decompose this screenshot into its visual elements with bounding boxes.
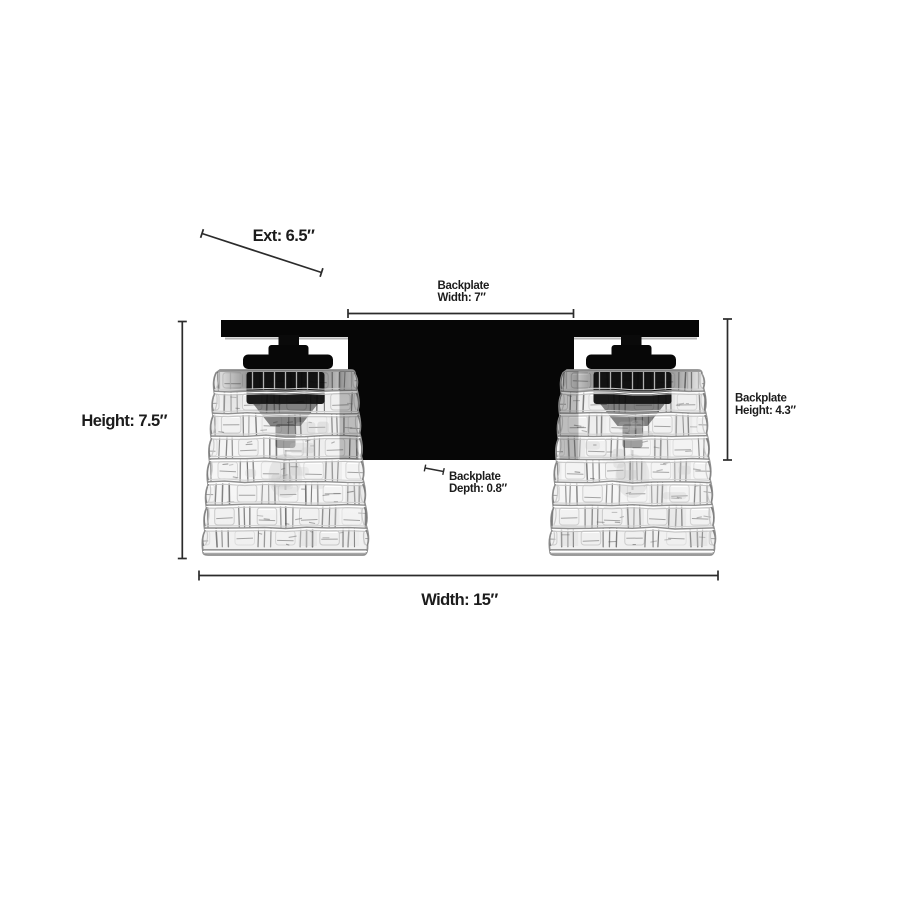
svg-text:Height: 7.5″: Height: 7.5″ <box>81 412 167 430</box>
svg-text:Backplate: Backplate <box>438 280 490 292</box>
svg-text:Width: 15″: Width: 15″ <box>421 591 498 609</box>
svg-text:Backplate: Backplate <box>449 471 501 483</box>
svg-text:Backplate: Backplate <box>735 393 787 405</box>
svg-text:Height: 4.3″: Height: 4.3″ <box>735 405 796 417</box>
svg-text:Ext: 6.5″: Ext: 6.5″ <box>253 227 315 245</box>
svg-text:Width: 7″: Width: 7″ <box>438 292 487 304</box>
svg-text:Depth: 0.8″: Depth: 0.8″ <box>449 483 508 495</box>
